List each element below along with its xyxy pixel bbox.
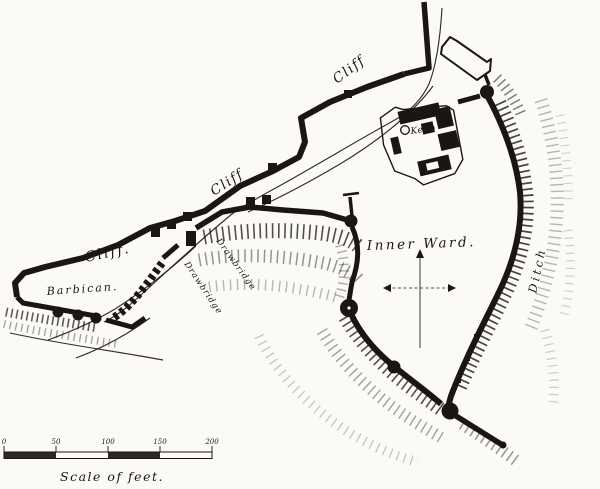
castle-plan-page: 0 50 100 150 200 Scale of feet. Cliff Cl… [0,0,600,489]
compass-cross [383,249,456,348]
cliff-label-top: Cliff [330,52,369,87]
barbican-label: Barbican. [45,280,118,298]
scale-bar: 0 50 100 150 200 Scale of feet. [2,438,219,484]
castle-plan-map: 0 50 100 150 200 Scale of feet. Cliff Cl… [0,0,600,489]
outbuilding-outline [441,37,491,80]
inner-ward-wall-west [340,193,507,449]
place-labels: Cliff Cliff Cliff. Barbican. Drawbridge … [45,52,548,316]
drawbridge-label-upper: Drawbridge [213,236,258,292]
ditch-label: Ditch [525,246,549,295]
scale-tick-50: 50 [52,438,61,446]
scale-tick-100: 100 [101,438,115,446]
ditch-hatching [459,78,570,463]
scale-tick-0: 0 [2,438,7,446]
gatehouse-pier [186,231,196,246]
drawbridge-label-lower: Drawbridge [181,259,224,316]
cliff-label-lower: Cliff. [84,241,132,266]
northeast-junction-tower [480,85,494,99]
scale-tick-200: 200 [204,438,219,446]
stepped-causeway [113,263,162,318]
scale-tick-150: 150 [153,438,167,446]
inner-ward-label: Inner Ward. [366,234,477,254]
keep-building [376,95,468,192]
scale-caption: Scale of feet. [60,469,164,484]
